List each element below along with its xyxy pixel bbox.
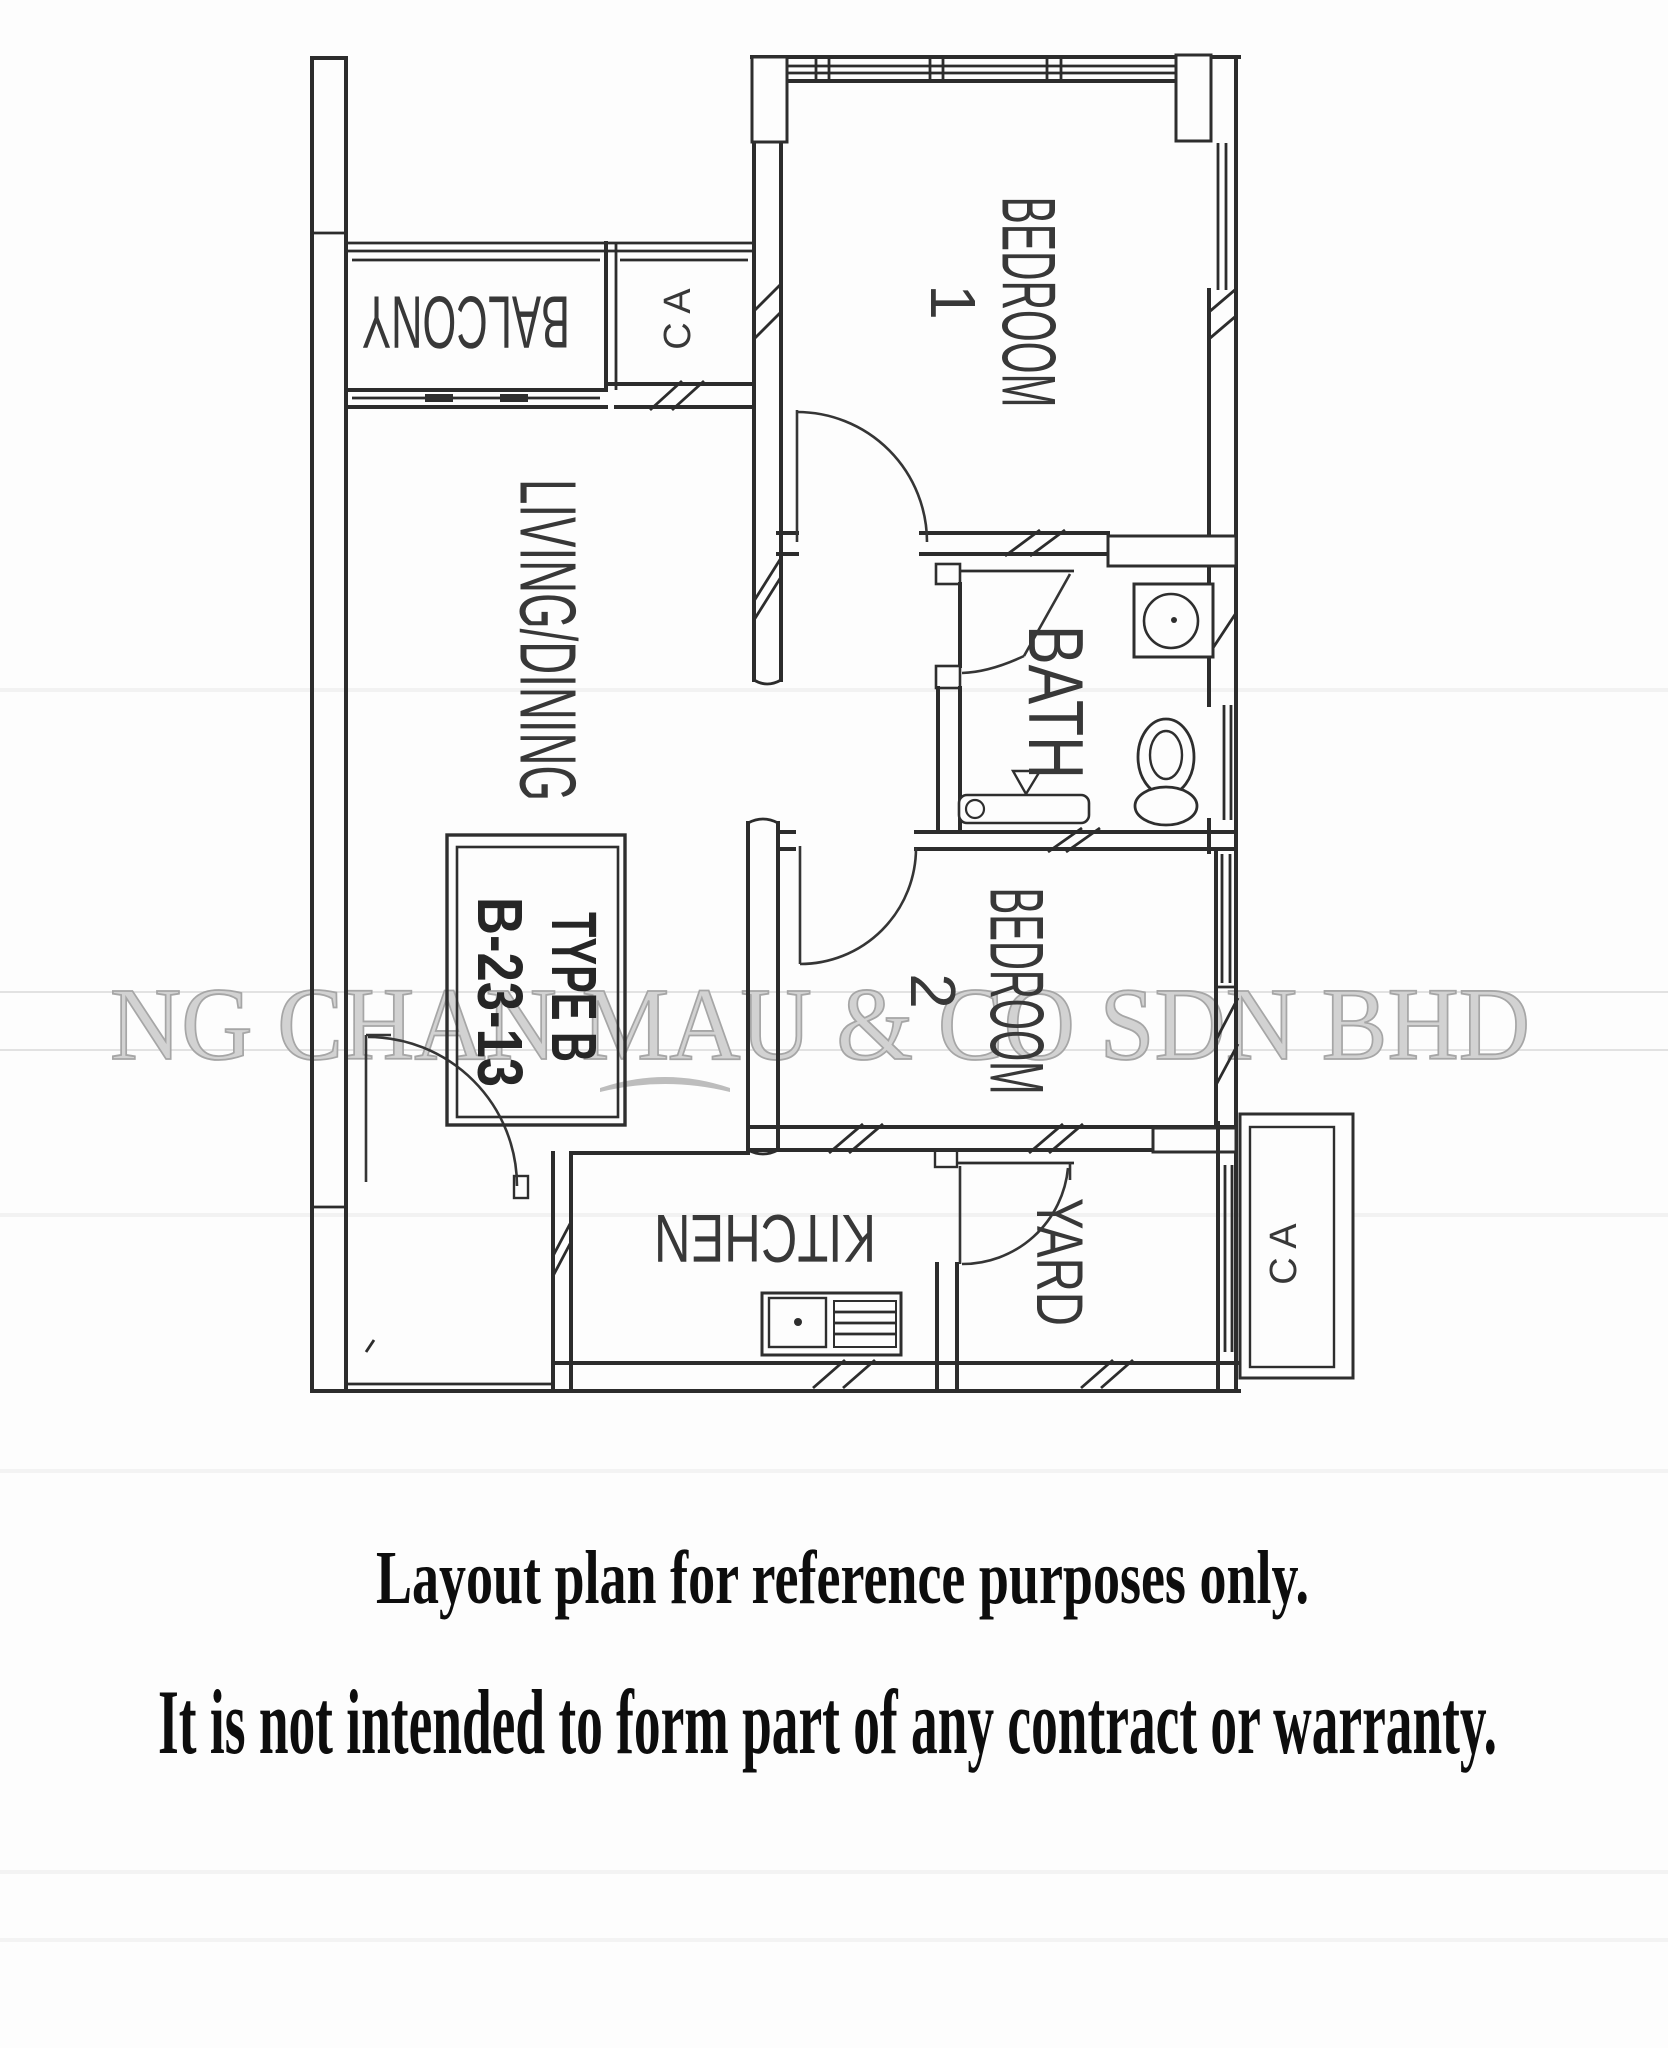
svg-text:NG CHAN MAU & CO SDN BHD: NG CHAN MAU & CO SDN BHD xyxy=(110,967,1530,1082)
svg-text:C: C xyxy=(657,322,699,349)
svg-text:LIVING/DINING: LIVING/DINING xyxy=(504,479,593,801)
svg-text:BATH: BATH xyxy=(1012,625,1100,779)
svg-text:A: A xyxy=(1263,1223,1305,1249)
svg-text:1: 1 xyxy=(917,284,989,320)
svg-text:A: A xyxy=(657,288,699,314)
svg-text:BALCONY: BALCONY xyxy=(362,281,570,364)
svg-text:B-23-13: B-23-13 xyxy=(464,897,536,1087)
svg-text:KITCHEN: KITCHEN xyxy=(654,1200,876,1276)
svg-text:BEDROOM: BEDROOM xyxy=(974,888,1059,1095)
svg-text:TYPE B: TYPE B xyxy=(538,912,610,1062)
svg-text:BEDROOM: BEDROOM xyxy=(986,197,1071,408)
svg-text:Layout plan for reference purp: Layout plan for reference purposes only. xyxy=(376,1536,1309,1620)
svg-text:YARD: YARD xyxy=(1023,1198,1097,1326)
svg-text:2: 2 xyxy=(897,973,969,1009)
svg-text:C: C xyxy=(1263,1257,1305,1284)
svg-text:It is not intended to form par: It is not intended to form part of any c… xyxy=(158,1671,1497,1773)
